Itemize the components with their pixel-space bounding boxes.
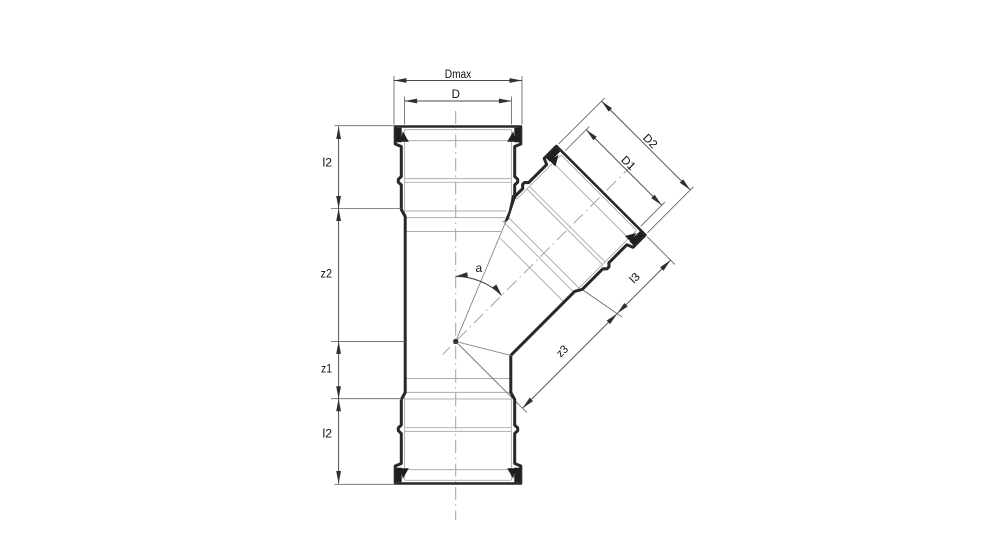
svg-text:D: D	[452, 89, 460, 101]
svg-text:Dmax: Dmax	[445, 69, 472, 81]
svg-text:l2: l2	[323, 428, 333, 440]
svg-text:z1: z1	[321, 363, 332, 375]
svg-text:z2: z2	[321, 269, 333, 281]
svg-text:a: a	[475, 261, 482, 275]
svg-text:l2: l2	[323, 158, 333, 170]
